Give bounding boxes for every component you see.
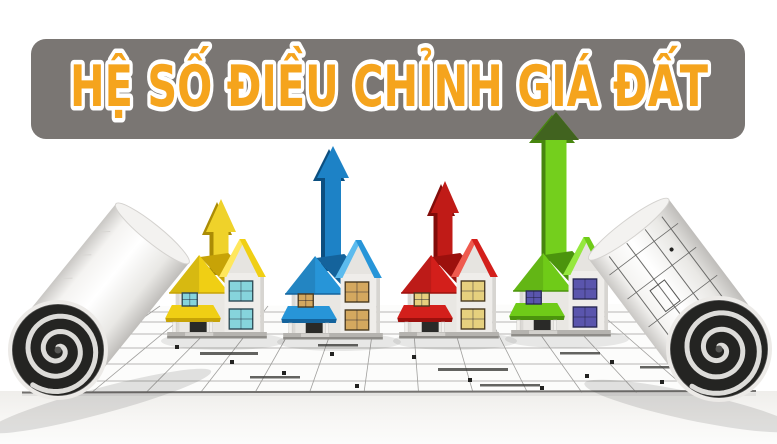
porch-awning bbox=[281, 306, 336, 319]
steps bbox=[529, 331, 557, 335]
steps bbox=[417, 333, 445, 337]
porch-post bbox=[553, 320, 556, 331]
steps bbox=[185, 333, 213, 337]
porch-post bbox=[289, 323, 292, 334]
house-base bbox=[399, 332, 499, 337]
house-base bbox=[511, 330, 611, 335]
steps bbox=[301, 334, 329, 338]
porch-post bbox=[441, 322, 444, 333]
land-price-coefficient-illustration: HỆ SỐ ĐIỀU CHỈNH GIÁ ĐẤT bbox=[0, 0, 777, 444]
porch-awning bbox=[509, 303, 564, 316]
house-base bbox=[167, 332, 267, 337]
title-banner: HỆ SỐ ĐIỀU CHỈNH GIÁ ĐẤT bbox=[31, 39, 745, 139]
porch-post bbox=[209, 322, 212, 333]
banner-title: HỆ SỐ ĐIỀU CHỈNH GIÁ ĐẤT bbox=[70, 45, 708, 120]
porch-post bbox=[405, 322, 408, 333]
scene-canvas: HỆ SỐ ĐIỀU CHỈNH GIÁ ĐẤT bbox=[0, 0, 777, 444]
porch-post bbox=[325, 323, 328, 334]
porch-post bbox=[173, 322, 176, 333]
porch-awning bbox=[397, 305, 452, 318]
porch-awning bbox=[165, 305, 220, 318]
porch-post bbox=[517, 320, 520, 331]
house-base bbox=[283, 333, 383, 338]
